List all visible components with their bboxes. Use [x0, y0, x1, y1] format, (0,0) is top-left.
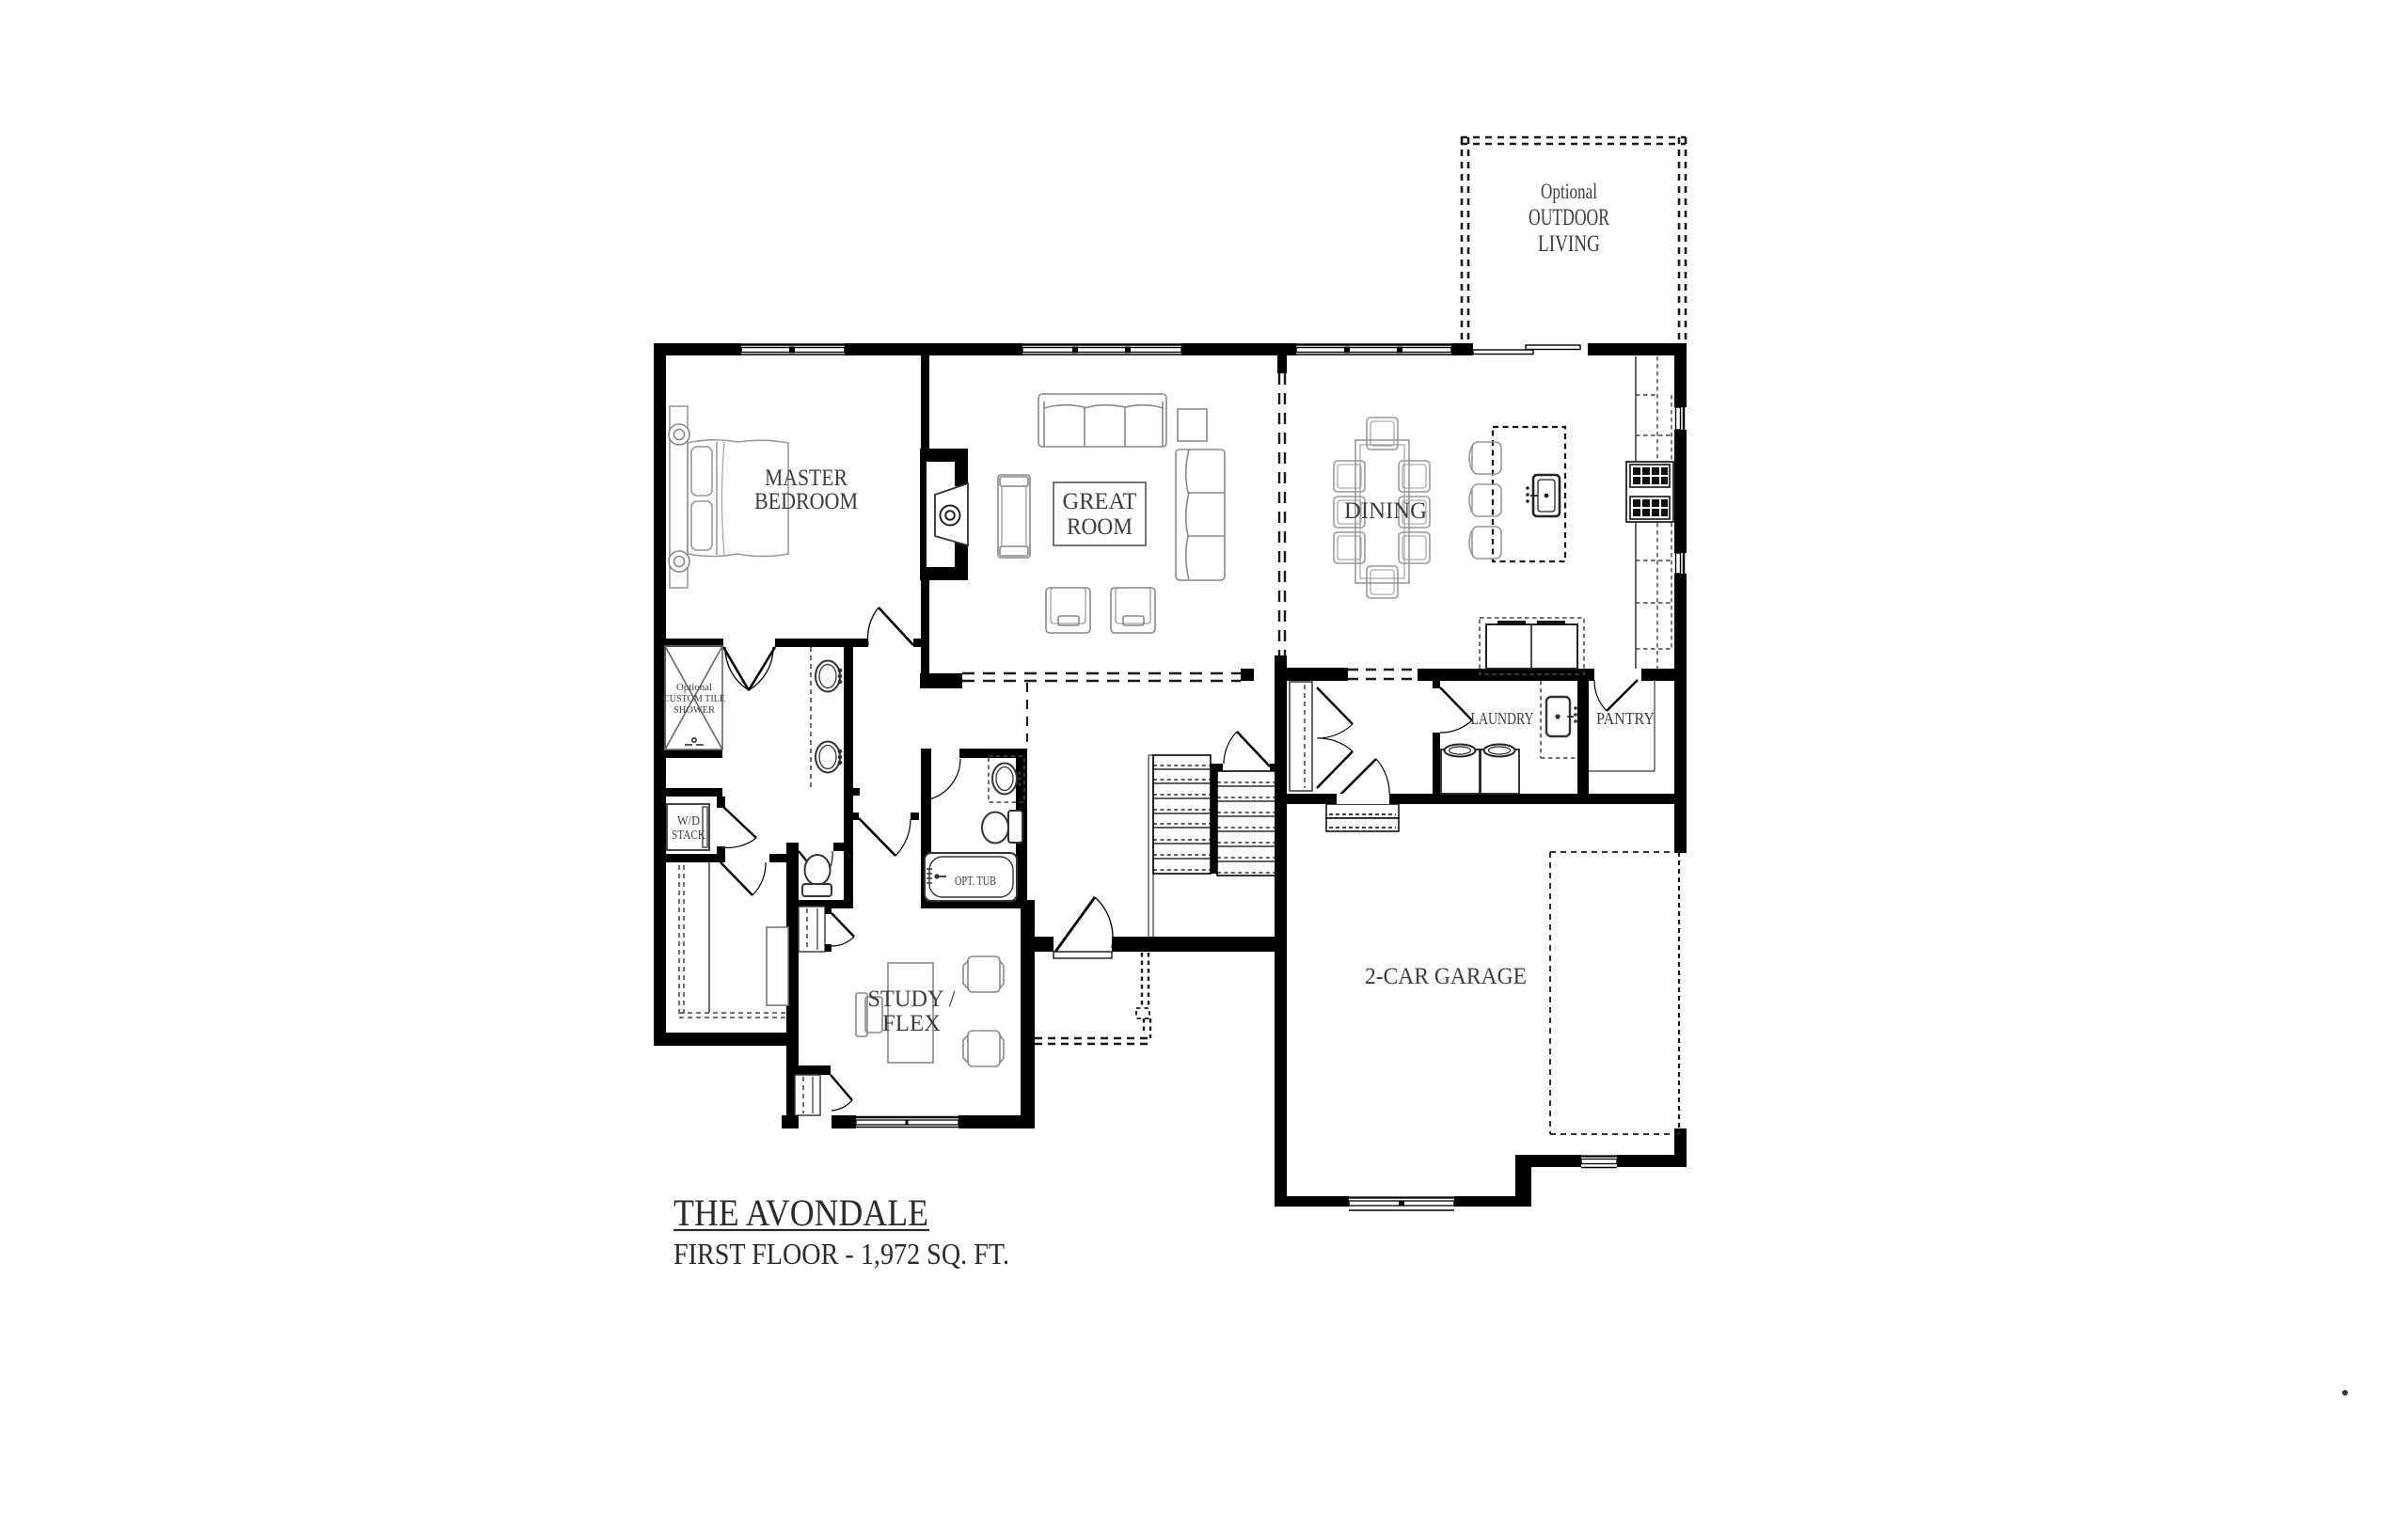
svg-text:CUSTOM TILE: CUSTOM TILE: [663, 694, 725, 704]
svg-text:SHOWER: SHOWER: [673, 705, 715, 716]
svg-text:ROOM: ROOM: [1067, 514, 1133, 540]
svg-text:GREAT: GREAT: [1063, 489, 1137, 514]
svg-text:PANTRY: PANTRY: [1596, 709, 1655, 728]
svg-text:FIRST FLOOR - 1,972 SQ. FT.: FIRST FLOOR - 1,972 SQ. FT.: [673, 1237, 1009, 1270]
svg-text:Optional: Optional: [1541, 180, 1597, 203]
svg-text:STACK: STACK: [672, 828, 705, 842]
svg-text:DINING: DINING: [1344, 498, 1427, 524]
svg-text:Optional: Optional: [676, 683, 712, 693]
svg-text:OPT. TUB: OPT. TUB: [955, 874, 996, 888]
svg-text:STUDY /: STUDY /: [868, 986, 956, 1012]
svg-text:THE AVONDALE: THE AVONDALE: [673, 1191, 928, 1234]
svg-text:2-CAR GARAGE: 2-CAR GARAGE: [1365, 964, 1527, 989]
svg-text:W/D: W/D: [677, 813, 700, 828]
svg-text:FLEX: FLEX: [882, 1011, 941, 1036]
svg-text:LIVING: LIVING: [1538, 231, 1600, 257]
svg-text:LAUNDRY: LAUNDRY: [1471, 709, 1534, 728]
svg-text:BEDROOM: BEDROOM: [754, 489, 858, 514]
svg-text:OUTDOOR: OUTDOOR: [1529, 205, 1609, 230]
svg-text:MASTER: MASTER: [765, 466, 848, 491]
